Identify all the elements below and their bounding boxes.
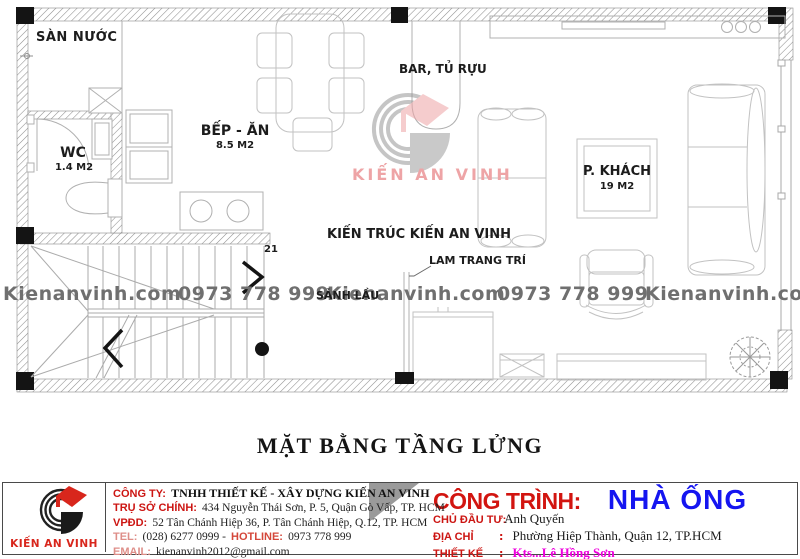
room-area-wc: 1.4 M2 [48,162,100,173]
branch-value: 52 Tân Chánh Hiệp 36, P. Tân Chánh Hiệp,… [152,517,427,529]
company-row: TEL: (028) 6277 0999 - HOTLINE: 0973 778… [113,529,433,543]
label-bar-tu-ruu: BAR, TỦ RỰU [399,62,487,76]
email-value: kienanvinh2012@gmail.com [156,546,290,558]
sheet-title: MẶT BẰNG TẦNG LỬNG [0,433,800,459]
designer-value: Kts...Lê Hồng Sơn [513,545,615,559]
staircase [31,246,264,378]
hotline-value: 0973 778 999 [288,531,351,543]
room-area-p-khach: 19 M2 [577,181,657,192]
title-block: KIẾN AN VINH CÔNG TY: TNHH THIẾT KẾ - XÂ… [2,482,798,555]
project-heading: CÔNG TRÌNH: NHÀ ỐNG [433,484,797,511]
room-label-bep-an: BẾP - ĂN [192,123,278,139]
plant-icon [730,337,770,377]
watermark-phone-1: 0973 778 999 [178,283,329,305]
address-value: Phường Hiệp Thành, Quận 12, TP.HCM [513,528,722,543]
owner-value: Anh Quyến [504,511,564,526]
company-value: TNHH THIẾT KẾ - XÂY DỰNG KIẾN AN VINH [171,486,430,500]
watermark-logo-text: KIẾN AN VINH [352,165,513,184]
watermark-phone-2: 0973 778 999 [497,283,648,305]
headquarters-value: 434 Nguyễn Thái Sơn, P. 5, Quận Gò Vấp, … [202,502,445,514]
project-row: THIẾT KẾ: Kts...Lê Hồng Sơn [433,545,797,559]
stair-step-count: 21 [264,244,278,255]
company-row: CÔNG TY: TNHH THIẾT KẾ - XÂY DỰNG KIẾN A… [113,486,433,500]
address-label: ĐỊA CHỈ [433,531,499,545]
room-label-wc: WC [55,145,91,161]
designer-colon: : [499,547,503,559]
annotation-lam-trang-tri: LAM TRANG TRÍ [429,254,526,267]
stair-newel-dot [255,342,269,356]
company-info: CÔNG TY: TNHH THIẾT KẾ - XÂY DỰNG KIẾN A… [107,483,433,552]
kien-an-vinh-watermark-logo [374,94,450,173]
company-row: VPĐD: 52 Tân Chánh Hiệp 36, P. Tân Chánh… [113,515,433,529]
project-heading-value: NHÀ ỐNG [608,484,747,515]
watermark-site-1: Kienanvinh.com [3,283,181,305]
company-logo-icon [3,483,105,537]
project-info: CÔNG TRÌNH: NHÀ ỐNG CHỦ ĐẦU TƯ: Anh Quyế… [433,483,797,552]
company-logo-text: KIẾN AN VINH [3,538,105,550]
headquarters-label: TRỤ SỞ CHÍNH: [113,502,197,514]
watermark-site-3: Kienanvinh.com [645,283,800,305]
company-label: CÔNG TY: [113,488,166,500]
company-row: EMAIL: kienanvinh2012@gmail.com [113,544,433,558]
designer-label: THIẾT KẾ [433,548,499,559]
owner-label: CHỦ ĐẦU TƯ: [433,514,499,528]
address-colon: : [499,530,503,543]
company-row: TRỤ SỞ CHÍNH: 434 Nguyễn Thái Sơn, P. 5,… [113,500,433,514]
room-label-san-nuoc: SÀN NƯỚC [36,30,117,45]
project-row: ĐỊA CHỈ: Phường Hiệp Thành, Quận 12, TP.… [433,528,797,545]
annotation-studio: KIẾN TRÚC KIẾN AN VINH [327,227,511,242]
tel-label: TEL: [113,531,137,543]
hotline-label: HOTLINE: [231,531,283,543]
room-label-p-khach: P. KHÁCH [577,164,657,179]
room-area-bep-an: 8.5 M2 [192,140,278,151]
drawing-sheet: SÀN NƯỚC WC 1.4 M2 BẾP - ĂN 8.5 M2 BAR, … [0,0,800,559]
email-label: EMAIL: [113,546,151,558]
company-logo: KIẾN AN VINH [3,483,106,552]
room-label-sanh-lau: SẢNH LẦU [316,289,379,302]
